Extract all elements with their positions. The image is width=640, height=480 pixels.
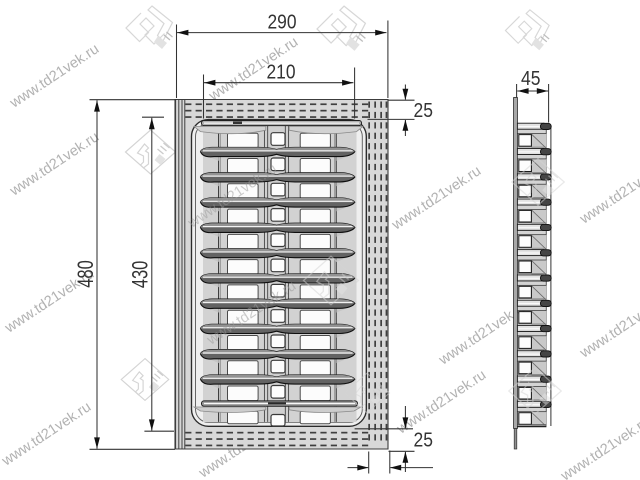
- svg-text:25: 25: [414, 100, 434, 122]
- svg-text:480: 480: [73, 260, 98, 288]
- svg-text:430: 430: [128, 261, 153, 289]
- svg-text:45: 45: [521, 68, 541, 90]
- svg-text:210: 210: [267, 62, 296, 84]
- svg-text:290: 290: [268, 12, 297, 34]
- svg-text:25: 25: [414, 430, 434, 452]
